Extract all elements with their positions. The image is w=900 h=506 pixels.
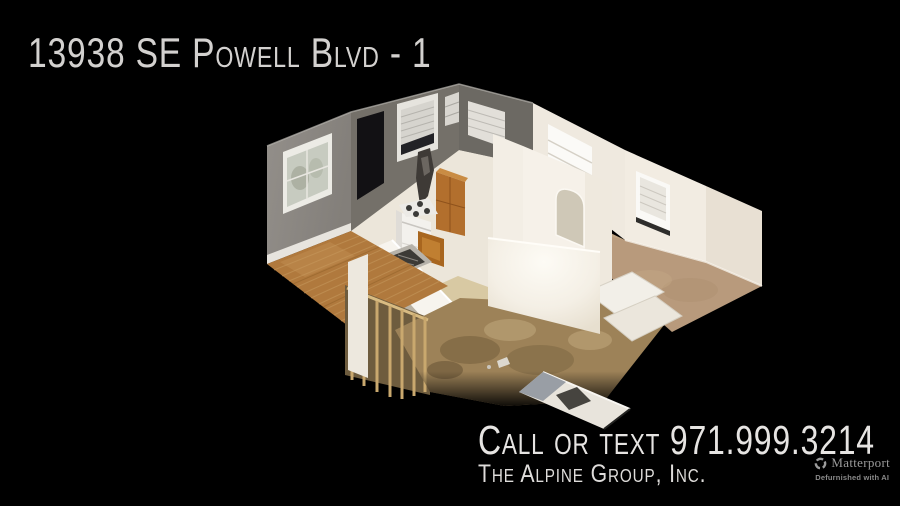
marketing-screenshot: { "page": { "background_color": "#000000… (0, 0, 900, 506)
canvas: 13938 SE Powell Blvd - 1 Call or text 97… (0, 0, 900, 506)
scan-scrap-dot (487, 365, 491, 369)
matterport-pinwheel-icon (814, 457, 827, 470)
corner-shelf (445, 92, 459, 126)
page-title: 13938 SE Powell Blvd - 1 (28, 30, 431, 76)
shelf-body (445, 92, 459, 126)
burner (424, 208, 430, 214)
matterport-branding: Matterport Defurnished with AI (814, 455, 890, 482)
brand-row: Matterport (814, 455, 890, 471)
burner (417, 201, 423, 207)
company-name-line: The Alpine Group, Inc. (478, 461, 706, 489)
matterport-logo-text: Matterport (831, 455, 890, 471)
cut-wall-fragment (348, 254, 368, 378)
burner (413, 211, 419, 217)
burner (406, 205, 412, 211)
defurnished-tagline: Defurnished with AI (814, 473, 890, 482)
